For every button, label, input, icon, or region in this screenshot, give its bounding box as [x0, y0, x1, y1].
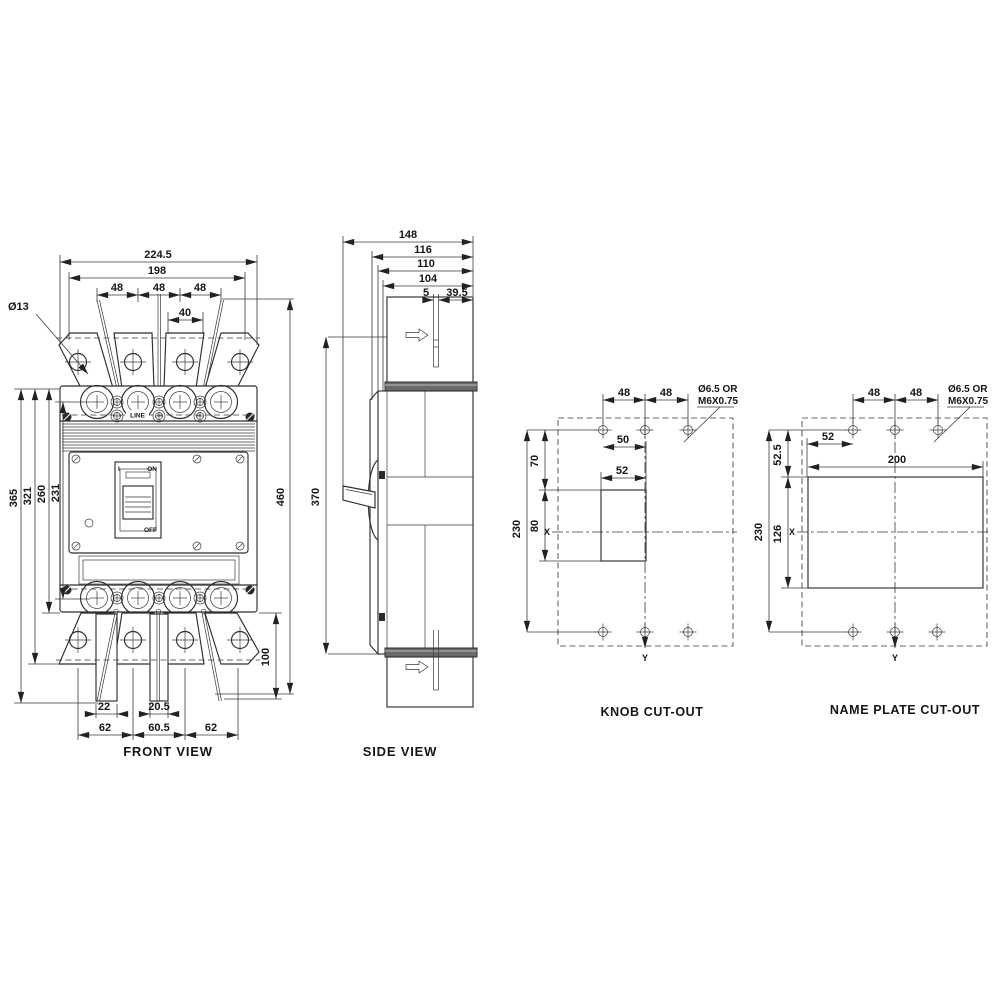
- nameplate-axis-x: X: [789, 527, 795, 537]
- front-top-extensions: [56, 294, 260, 393]
- nameplate-pitch-1: 48: [868, 387, 880, 399]
- knob-window: [601, 490, 646, 561]
- dim-back-39-5: 39.5: [446, 287, 467, 299]
- nameplate-hole-note-2: M6X0.75: [948, 396, 988, 407]
- side-view: 370: [310, 229, 477, 759]
- dim-overall-height: 460: [275, 488, 287, 506]
- front-view-title: FRONT VIEW: [123, 744, 213, 759]
- knob-axis-y: Y: [642, 653, 648, 663]
- knob-pitch-1: 48: [618, 387, 630, 399]
- dim-overall-width: 224.5: [144, 249, 172, 261]
- dim-tab-center: 20.5: [148, 701, 169, 713]
- on-label: ON: [147, 466, 157, 473]
- off-label: OFF: [144, 527, 157, 534]
- cover-screw: [63, 413, 72, 422]
- dim-depth-104: 104: [419, 273, 438, 285]
- nameplate-cutout-title: NAME PLATE CUT-OUT: [830, 703, 980, 717]
- knob-cutout-title: KNOB CUT-OUT: [600, 705, 703, 719]
- handle-i-mark: I: [118, 466, 120, 473]
- side-body: [343, 391, 473, 654]
- dim-height-321: 321: [22, 487, 34, 505]
- nameplate-cutout: 48 48 Ø6.5 OR M6X0.75 52 200 52.5 126 23…: [753, 384, 990, 717]
- knob-pitch-2: 48: [660, 387, 672, 399]
- knob-top-width: 50: [617, 434, 629, 446]
- dim-tab-left: 22: [98, 701, 110, 713]
- side-top-extension: [385, 297, 477, 391]
- dim-gap-5: 5: [423, 287, 429, 299]
- knob-hole-note-1: Ø6.5 OR: [698, 384, 738, 395]
- nameplate-window: [808, 477, 983, 588]
- knob-window-height: 80: [529, 520, 541, 532]
- terminal-tab: [150, 614, 168, 701]
- front-bottom-extensions: [56, 609, 260, 701]
- dim-bottom-pitch-3: 62: [205, 722, 217, 734]
- dim-body-height: 370: [310, 488, 322, 506]
- knob-window-width: 52: [616, 465, 628, 477]
- dim-height-231: 231: [50, 484, 62, 502]
- dim-pole-pitch-1: 48: [111, 282, 123, 294]
- dim-pole-pitch-2: 48: [153, 282, 165, 294]
- knob-hole-note-2: M6X0.75: [698, 396, 738, 407]
- nameplate-offset: 52: [822, 431, 834, 443]
- nameplate-total-height: 230: [753, 523, 765, 541]
- dim-hole-note: Ø13: [8, 301, 29, 313]
- knob-cutout: 48 48 Ø6.5 OR M6X0.75 50 52 70 80 230 X …: [511, 384, 738, 719]
- nameplate-axis-y: Y: [892, 653, 898, 663]
- side-view-title: SIDE VIEW: [363, 744, 437, 759]
- knob-upper-height: 70: [529, 455, 541, 467]
- dim-height-365: 365: [8, 489, 20, 507]
- terminal-tab: [96, 614, 117, 701]
- dim-depth-overall: 148: [399, 229, 417, 241]
- dim-depth-110: 110: [417, 258, 435, 270]
- line-label: LINE: [130, 413, 145, 420]
- front-view: LINE I ON: [8, 249, 294, 759]
- nameplate-upper-height: 52.5: [772, 444, 784, 465]
- nameplate-window-width: 200: [888, 454, 906, 466]
- dim-center-gap: 40: [179, 307, 191, 319]
- dim-depth-116: 116: [414, 244, 432, 256]
- cover-screw: [246, 413, 255, 422]
- nameplate-pitch-2: 48: [910, 387, 922, 399]
- dim-mounting-width: 198: [148, 265, 166, 277]
- dim-pole-pitch-3: 48: [194, 282, 206, 294]
- dim-bottom-pitch-1: 62: [99, 722, 111, 734]
- dim-extension-drop: 100: [260, 648, 272, 666]
- breaker-body: LINE I ON: [60, 386, 257, 615]
- dim-bottom-pitch-2: 60.5: [148, 722, 169, 734]
- knob-axis-x: X: [544, 527, 550, 537]
- dim-height-260: 260: [36, 485, 48, 503]
- knob-total-height: 230: [511, 520, 523, 538]
- nameplate-hole-note-1: Ø6.5 OR: [948, 384, 988, 395]
- nameplate-window-height: 126: [772, 525, 784, 543]
- technical-drawing-canvas: LINE I ON: [0, 0, 1000, 1000]
